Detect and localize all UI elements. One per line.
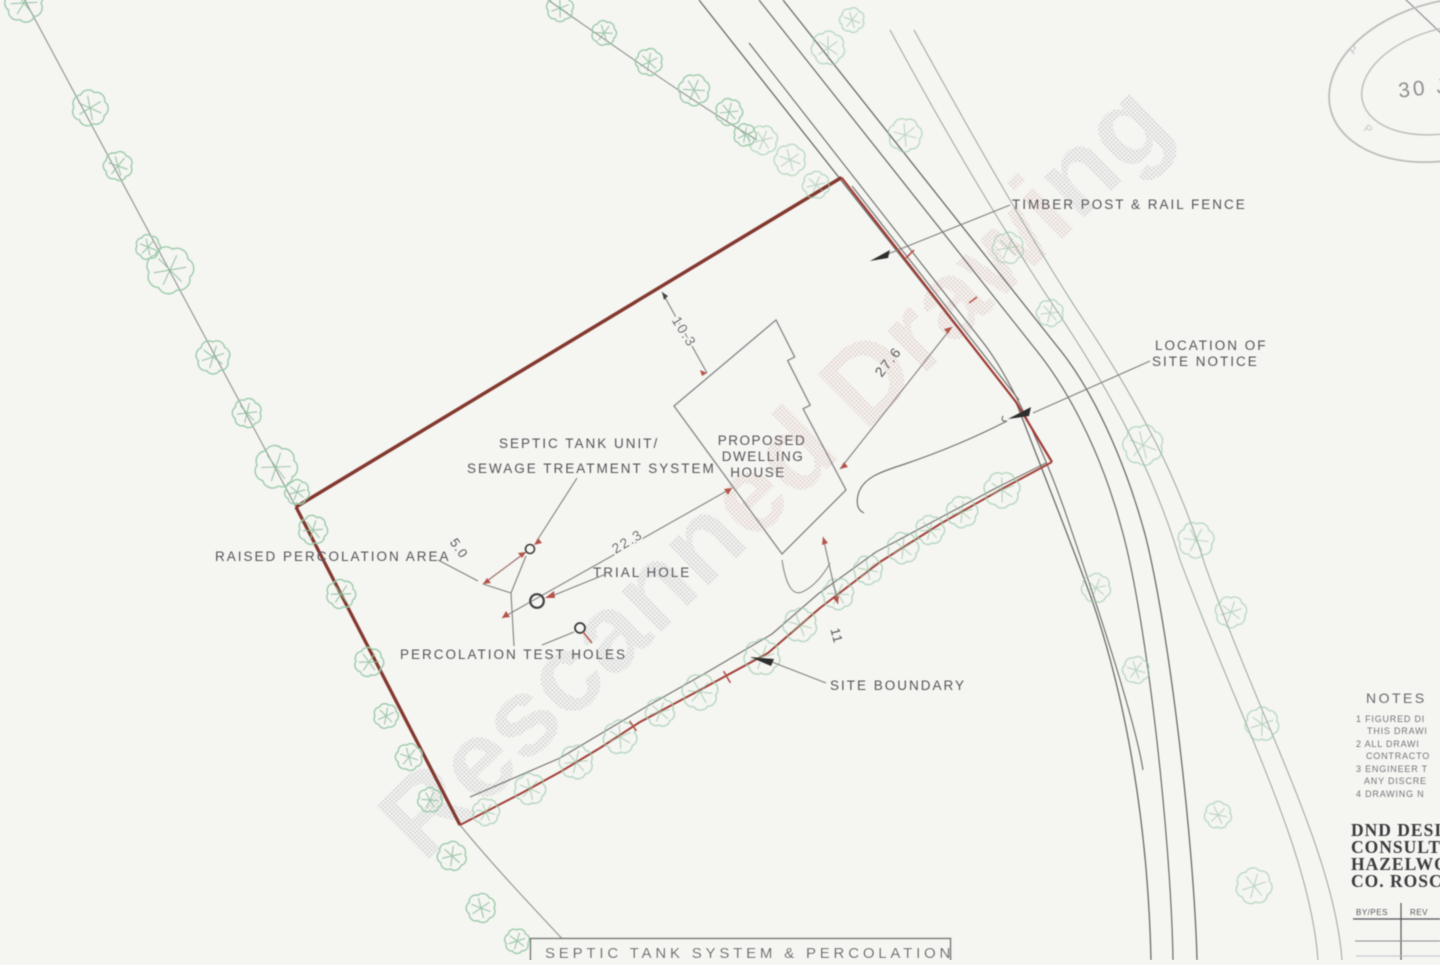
svg-text:SITE BOUNDARY: SITE BOUNDARY — [830, 678, 966, 693]
svg-text:DWELLING: DWELLING — [722, 449, 805, 464]
svg-text:NOTES: NOTES — [1366, 690, 1427, 706]
svg-text:CO. ROSC: CO. ROSC — [1351, 871, 1440, 891]
svg-text:2 ALL DRAWI: 2 ALL DRAWI — [1356, 739, 1420, 749]
svg-text:1 FIGURED DI: 1 FIGURED DI — [1356, 714, 1425, 724]
svg-text:30 J: 30 J — [1397, 74, 1440, 102]
svg-text:SITE NOTICE: SITE NOTICE — [1152, 354, 1259, 369]
svg-text:PROPOSED: PROPOSED — [718, 433, 807, 448]
svg-text:THIS DRAWI: THIS DRAWI — [1367, 726, 1428, 736]
svg-text:REV: REV — [1410, 908, 1428, 917]
svg-text:3 ENGINEER T: 3 ENGINEER T — [1356, 764, 1428, 774]
svg-text:ANY DISCRE: ANY DISCRE — [1364, 776, 1427, 786]
svg-text:TIMBER POST & RAIL FENCE: TIMBER POST & RAIL FENCE — [1012, 197, 1247, 212]
svg-text:BY/PES: BY/PES — [1356, 908, 1388, 917]
svg-text:HOUSE: HOUSE — [730, 465, 786, 480]
svg-text:RAISED PERCOLATION AREA: RAISED PERCOLATION AREA — [215, 549, 451, 564]
svg-text:CONTRACTO: CONTRACTO — [1366, 751, 1430, 761]
svg-text:SEPTIC TANK SYSTEM & PERCOLAT: SEPTIC TANK SYSTEM & PERCOLATION — [545, 945, 954, 960]
svg-text:SEWAGE TREATMENT SYSTEM: SEWAGE TREATMENT SYSTEM — [467, 461, 716, 476]
svg-text:PERCOLATION TEST HOLES: PERCOLATION TEST HOLES — [400, 647, 627, 662]
svg-text:SEPTIC TANK UNIT/: SEPTIC TANK UNIT/ — [499, 436, 659, 451]
svg-text:LOCATION OF: LOCATION OF — [1155, 338, 1268, 353]
svg-text:4 DRAWING N: 4 DRAWING N — [1356, 789, 1424, 799]
svg-text:TRIAL HOLE: TRIAL HOLE — [593, 565, 691, 580]
